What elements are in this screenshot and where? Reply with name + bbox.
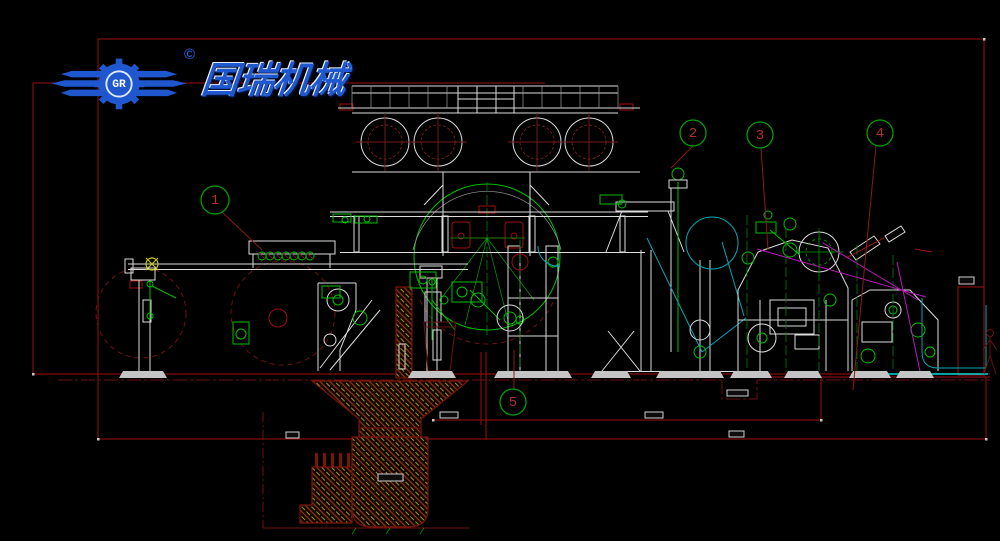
- floor-line: [58, 380, 990, 528]
- logo-monogram: GR: [112, 79, 126, 91]
- company-logo: GR © 国瑞机械: [44, 50, 314, 114]
- balloon-4-number: 4: [876, 126, 884, 142]
- balloon-5-number: 5: [509, 395, 517, 411]
- balloon-4: 4: [853, 120, 893, 390]
- yankee-cylinder: [330, 172, 684, 344]
- balloon-2: 2: [671, 120, 706, 168]
- balloon-1-number: 1: [211, 193, 219, 209]
- balloon-1: 1: [201, 186, 262, 250]
- cad-drawing-canvas: 1 2 3 4 5: [0, 0, 1000, 541]
- scale-figure: [983, 330, 997, 375]
- balloon-5: 5: [500, 350, 526, 415]
- balloon-2-number: 2: [689, 126, 697, 142]
- balloon-3-number: 3: [756, 128, 764, 144]
- forming-section-right: [641, 168, 997, 376]
- foundation-pit-hatch: [300, 287, 468, 534]
- dryer-cylinder-group: [338, 86, 640, 172]
- company-name: 国瑞机械: [199, 50, 349, 104]
- gear-wings-logo-icon: GR: [44, 50, 194, 116]
- copyright-mark: ©: [184, 46, 195, 63]
- felt-roll-row: [258, 252, 314, 260]
- balloon-3: 3: [747, 122, 773, 250]
